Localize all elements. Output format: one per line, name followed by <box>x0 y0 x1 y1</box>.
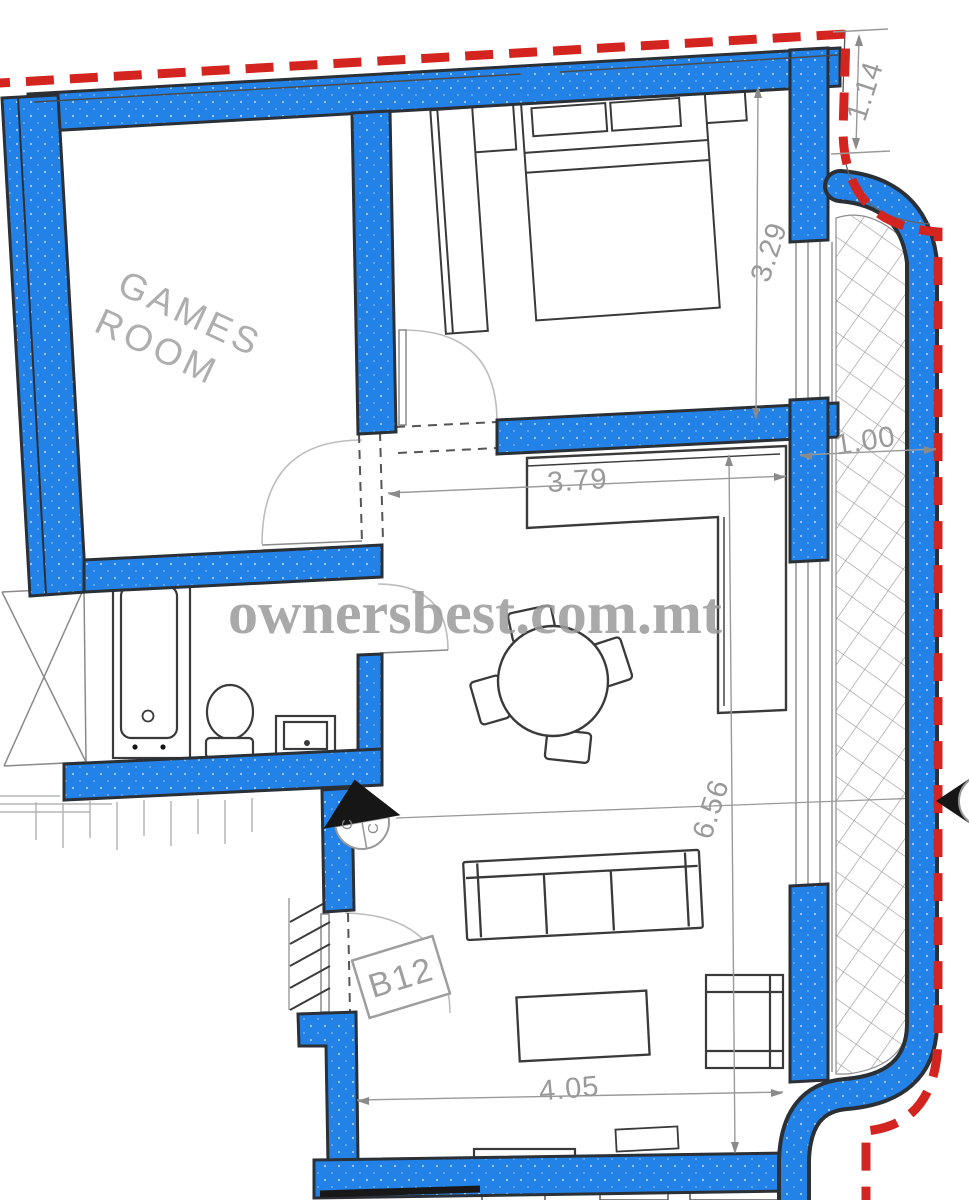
dim-text-bedroom-width: 3.79 <box>546 463 609 499</box>
nightstand-left <box>470 105 516 153</box>
bed-group <box>430 78 761 333</box>
watermark: ownersbest.com.mt <box>228 580 722 646</box>
entrance-door-leaf <box>321 914 329 1012</box>
sink <box>276 716 335 755</box>
wall-right-upper <box>790 48 828 242</box>
terrace-hatch <box>836 215 908 1074</box>
floorplan-page: 1.14 3.29 3.79 1.00 6.56 4.05 GAMES ROOM… <box>0 0 969 1200</box>
bottom-black-bar <box>320 1189 480 1194</box>
svg-text:C: C <box>339 819 356 830</box>
floorplan-svg: 1.14 3.29 3.79 1.00 6.56 4.05 GAMES ROOM… <box>0 0 969 1200</box>
bathtub <box>113 577 190 758</box>
pillow <box>531 103 607 136</box>
pillow <box>610 98 681 131</box>
wall-right-lower <box>790 884 828 1082</box>
cabinet <box>615 1126 678 1151</box>
toilet <box>206 685 253 758</box>
bedroom-door-leaf <box>399 330 406 425</box>
svg-text:C: C <box>365 823 382 834</box>
sofa <box>463 850 703 940</box>
coffee-table <box>516 991 649 1062</box>
wall-games-divider <box>352 111 396 434</box>
armchair <box>706 975 783 1068</box>
wall-right-middle <box>790 398 828 562</box>
dim-text-living-width: 4.05 <box>538 1070 601 1107</box>
